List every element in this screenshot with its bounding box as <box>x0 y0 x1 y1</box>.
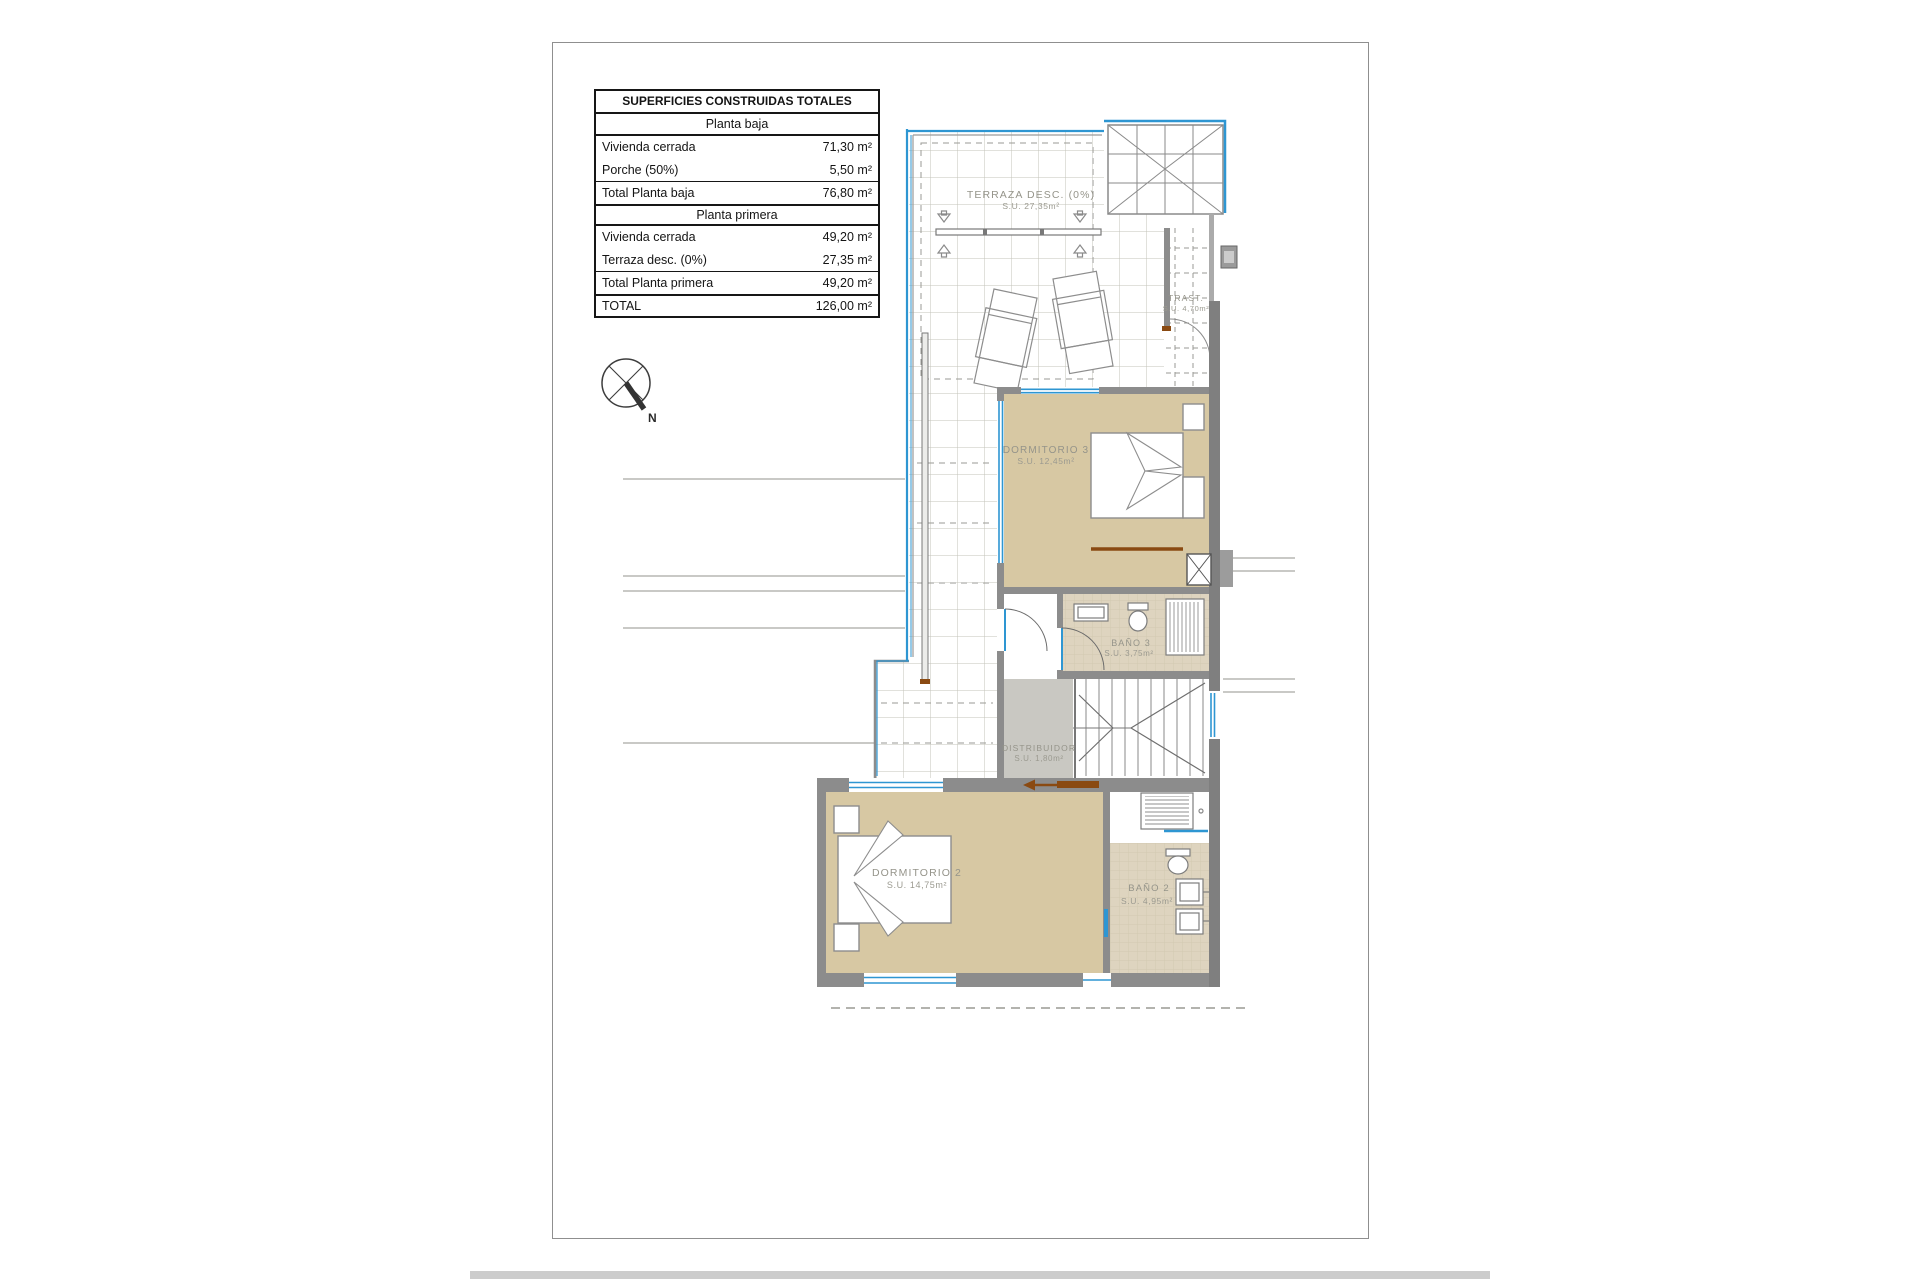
label-bano3: BAÑO 3 <box>1111 638 1151 648</box>
north-label: N <box>648 411 657 425</box>
label-bano2-area: S.U. 4,95m² <box>1121 896 1173 906</box>
label-trastero-area: S.U. 4,70m² <box>1163 304 1210 313</box>
label-bano2: BAÑO 2 <box>1128 883 1169 894</box>
label-bano3-area: S.U. 3,75m² <box>1104 649 1153 658</box>
floor-plan: TERRAZA DESC. (0%) S.U. 27,35m² TRAST. S… <box>553 43 1368 1238</box>
plan-page: SUPERFICIES CONSTRUIDAS TOTALES Planta b… <box>552 42 1369 1239</box>
right-wall <box>1209 301 1220 987</box>
label-distribuidor: DISTRIBUIDOR <box>1002 743 1076 753</box>
drawing-sheet: SUPERFICIES CONSTRUIDAS TOTALES Planta b… <box>0 0 1920 1280</box>
right-wall-upper <box>1209 214 1214 301</box>
north-arrow-icon: N <box>602 359 657 425</box>
label-terraza: TERRAZA DESC. (0%) <box>967 189 1095 201</box>
shaft-box <box>1187 550 1233 587</box>
label-dormitorio2-area: S.U. 14,75m² <box>887 880 947 890</box>
label-trastero: TRAST. <box>1168 293 1204 303</box>
label-distribuidor-area: S.U. 1,80m² <box>1014 754 1063 763</box>
label-dormitorio3: DORMITORIO 3 <box>1003 445 1089 456</box>
label-dormitorio3-area: S.U. 12,45m² <box>1017 456 1074 466</box>
label-terraza-area: S.U. 27,35m² <box>1002 201 1059 211</box>
label-dormitorio2: DORMITORIO 2 <box>872 867 962 879</box>
scan-edge-strip <box>470 1271 1490 1279</box>
roof-skylight <box>1108 125 1223 214</box>
